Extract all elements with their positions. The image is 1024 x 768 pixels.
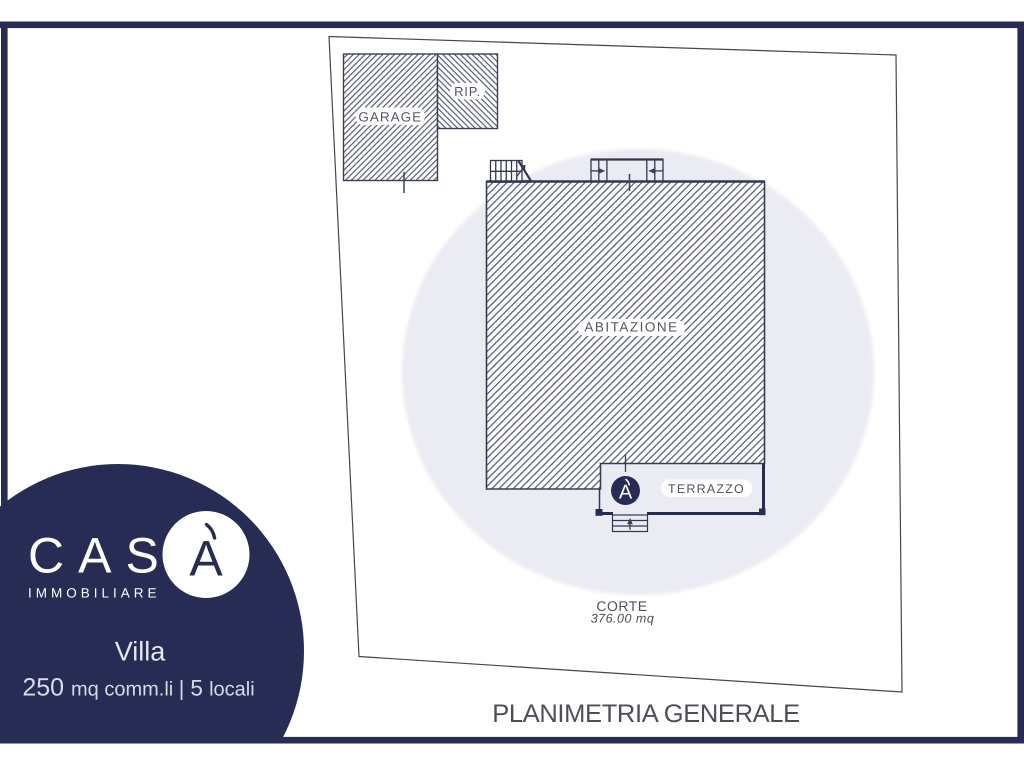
svg-text:Villa: Villa (115, 637, 167, 667)
svg-text:A: A (189, 531, 223, 587)
svg-text:A: A (619, 482, 633, 504)
svg-text:RIP.: RIP. (454, 84, 481, 99)
svg-text:PLANIMETRIA GENERALE: PLANIMETRIA GENERALE (492, 700, 800, 728)
svg-text:TERRAZZO: TERRAZZO (668, 482, 745, 496)
svg-text:IMMOBILIARE: IMMOBILIARE (28, 586, 161, 601)
svg-text:250 mq comm.li | 5 locali: 250 mq comm.li | 5 locali (22, 674, 254, 702)
svg-text:376.00 mq: 376.00 mq (591, 612, 655, 626)
svg-text:GARAGE: GARAGE (358, 110, 422, 125)
svg-text:ABITAZIONE: ABITAZIONE (584, 320, 678, 335)
svg-text:CAS: CAS (28, 528, 173, 584)
